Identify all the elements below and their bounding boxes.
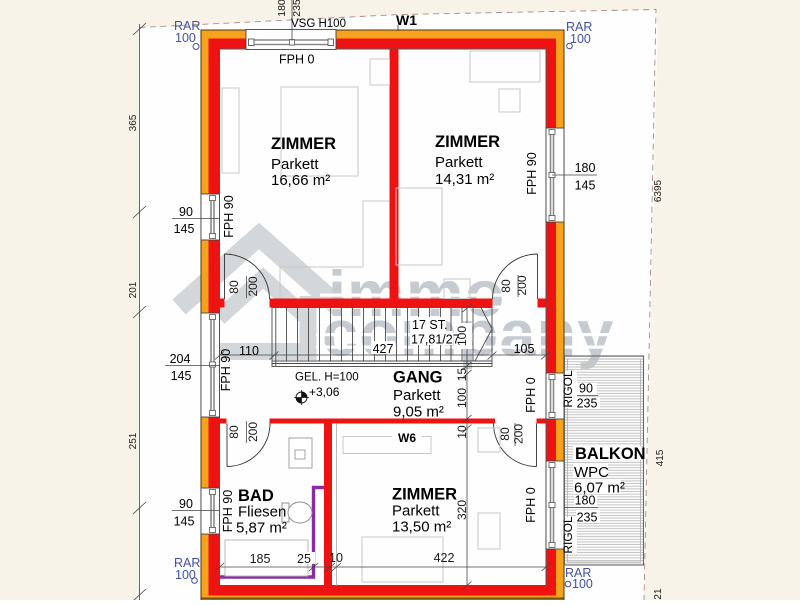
svg-text:100: 100 [455,326,469,346]
svg-text:201: 201 [128,281,139,298]
svg-text:6395: 6395 [653,179,664,202]
svg-text:GANG: GANG [393,369,443,387]
svg-text:6,07 m²: 6,07 m² [574,480,625,497]
svg-text:145: 145 [174,222,195,236]
svg-text:17 ST.: 17 ST. [412,318,447,332]
svg-text:15: 15 [455,368,469,382]
svg-text:GEL. H=100: GEL. H=100 [295,372,359,384]
svg-text:80: 80 [498,427,512,441]
svg-text:ZIMMER: ZIMMER [392,486,457,504]
svg-text:100: 100 [570,32,591,46]
svg-text:145: 145 [575,179,596,193]
svg-text:21: 21 [653,588,664,600]
svg-text:100: 100 [572,577,593,591]
svg-text:RIGOL: RIGOL [561,516,575,554]
svg-text:200: 200 [246,276,260,296]
svg-text:200: 200 [515,275,529,295]
svg-text:Parkett: Parkett [393,387,441,404]
svg-text:Parkett: Parkett [392,503,440,520]
svg-text:9,05 m²: 9,05 m² [393,404,444,421]
svg-text:80: 80 [499,279,513,293]
svg-text:90: 90 [179,497,193,511]
svg-text:17,81/27: 17,81/27 [411,333,460,347]
svg-text:RIGOL: RIGOL [561,370,575,408]
svg-text:110: 110 [239,344,259,358]
svg-text:204: 204 [170,352,191,366]
svg-text:100: 100 [175,568,196,582]
svg-text:185: 185 [250,552,271,566]
svg-text:14,31 m²: 14,31 m² [435,171,494,188]
svg-text:13,50 m²: 13,50 m² [392,519,451,536]
svg-text:BALKON: BALKON [575,445,646,463]
svg-text:WPC: WPC [574,464,609,481]
svg-text:100: 100 [455,388,469,408]
svg-text:200: 200 [512,424,526,444]
svg-text:5,87 m²: 5,87 m² [236,520,287,537]
svg-text:90: 90 [579,382,593,396]
svg-text:Parkett: Parkett [435,154,483,171]
svg-text:10: 10 [329,551,343,565]
svg-text:25: 25 [297,552,311,566]
svg-text:427: 427 [373,342,394,356]
svg-text:W1: W1 [396,12,417,28]
svg-text:200: 200 [246,422,260,442]
svg-text:ZIMMER: ZIMMER [435,133,500,151]
svg-text:80: 80 [227,280,241,294]
svg-text:FPH 90: FPH 90 [222,195,236,237]
svg-text:FPH 0: FPH 0 [279,53,314,67]
svg-text:365: 365 [128,114,139,131]
svg-text:80: 80 [227,425,241,439]
svg-text:235: 235 [577,397,598,411]
svg-text:235: 235 [291,0,303,17]
svg-text:VSG H100: VSG H100 [291,18,346,30]
svg-text:W6: W6 [398,431,416,445]
svg-text:FPH 0: FPH 0 [524,487,538,522]
svg-text:145: 145 [174,515,195,529]
svg-text:FPH 90: FPH 90 [525,152,539,194]
svg-text:+3,06: +3,06 [309,385,340,399]
svg-text:90: 90 [179,205,193,219]
svg-text:ZIMMER: ZIMMER [271,135,336,153]
svg-text:FPH 0: FPH 0 [524,377,538,412]
svg-text:Fliesen: Fliesen [238,504,286,521]
svg-text:415: 415 [655,449,666,466]
svg-text:16,66 m²: 16,66 m² [271,172,330,189]
svg-text:235: 235 [577,511,598,525]
svg-text:320: 320 [455,500,469,520]
svg-text:FPH 90: FPH 90 [221,490,235,532]
svg-text:FPH 90: FPH 90 [219,349,233,391]
svg-text:422: 422 [434,551,455,565]
svg-text:Parkett: Parkett [271,156,319,173]
svg-text:10: 10 [455,425,469,439]
svg-text:180: 180 [575,161,596,175]
svg-text:105: 105 [514,342,535,356]
svg-text:251: 251 [128,432,139,449]
svg-text:145: 145 [171,369,192,383]
svg-text:BAD: BAD [238,487,274,505]
svg-text:100: 100 [175,31,196,45]
svg-text:180: 180 [276,0,288,17]
